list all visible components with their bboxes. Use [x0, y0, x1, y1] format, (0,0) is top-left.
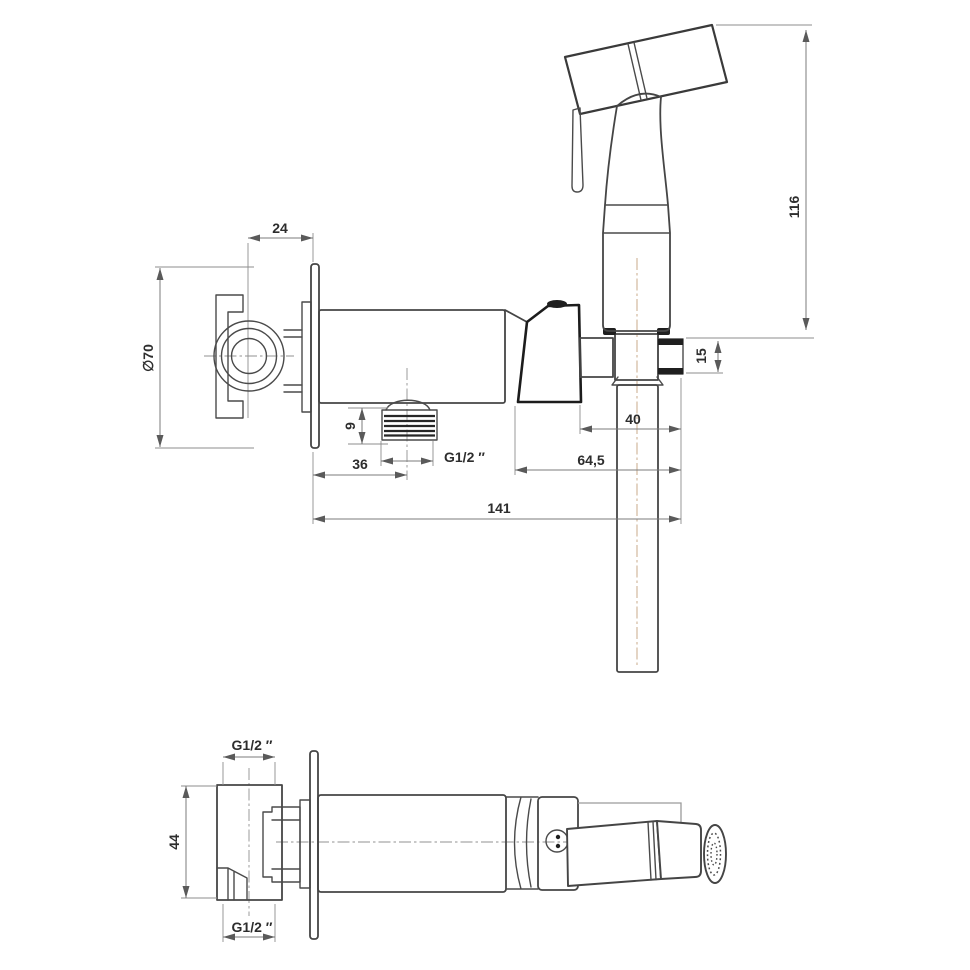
valve-body-taper: [505, 310, 527, 322]
sprayer-handle-bands: [603, 205, 670, 233]
dim-body-height: 44: [166, 834, 182, 850]
front-dimensions: 24 ∅70 116 15 40 64,5 141 9 36: [140, 25, 814, 524]
plan-sprayer-cap: [657, 821, 701, 879]
plan-escutcheon-plate: [310, 751, 318, 939]
dim70-ext: [155, 267, 254, 448]
technical-drawing-canvas: 24 ∅70 116 15 40 64,5 141 9 36: [0, 0, 970, 970]
plan-hex-facets: [272, 820, 300, 869]
dim-outlet-offset: 36: [352, 456, 368, 472]
plan-sprayer-head: [567, 821, 661, 886]
sprayer-trigger-lever: [572, 108, 583, 192]
plan-screw-hole-1: [556, 835, 560, 839]
dim-inlet-thread-top: G1/2 ″: [232, 737, 273, 753]
dim-sprayer-height: 116: [786, 195, 802, 218]
plan-saddle: [506, 797, 538, 889]
plan-plate-adapter: [300, 800, 310, 888]
dim-holder-width: 40: [625, 411, 641, 427]
dim-holder-height: 15: [693, 348, 709, 364]
outlet-thread-lines: [384, 416, 435, 436]
dim-inlet-thread-bottom: G1/2 ″: [232, 919, 273, 935]
lever-knob: [547, 300, 567, 308]
holder-right-connector-bottom-bar: [658, 368, 683, 374]
dim-outlet-height: 9: [342, 422, 358, 430]
dim40-ext: [580, 378, 681, 524]
plan-screw-hole-2: [556, 844, 560, 848]
wall-bracket-flange: [216, 295, 243, 418]
dim-plate-offset: 24: [272, 220, 288, 236]
plan-view: [217, 751, 726, 939]
holder-left-connector: [580, 338, 613, 377]
dim-outlet-thread: G1/2 ″: [444, 449, 485, 465]
outlet-dome: [386, 400, 430, 410]
valve-body: [319, 310, 505, 403]
dim-plate-diameter: ∅70: [140, 344, 156, 372]
wall-escutcheon-plate: [311, 264, 319, 448]
dim-total-width: 141: [487, 500, 511, 516]
holder-right-connector-top-bar: [658, 339, 683, 345]
plan-valve-block: [217, 785, 282, 900]
bracket-arms: [284, 330, 302, 392]
sprayer-head: [565, 25, 727, 114]
centerlines: [204, 243, 700, 916]
plan-bottom-outlet-thread: [217, 868, 247, 900]
plan-nozzle-ring: [704, 825, 726, 883]
plan-dimensions: G1/2 ″ 44 G1/2 ″: [166, 737, 275, 942]
plan-holder-screw-boss: [546, 830, 568, 852]
front-view: [214, 25, 727, 672]
control-lever: [518, 305, 581, 402]
plan-valve-body: [318, 795, 506, 892]
dim-holder-offset: 64,5: [577, 452, 604, 468]
bidet-sprayer-drawing: 24 ∅70 116 15 40 64,5 141 9 36: [0, 0, 970, 970]
plate-adapter: [302, 302, 311, 412]
